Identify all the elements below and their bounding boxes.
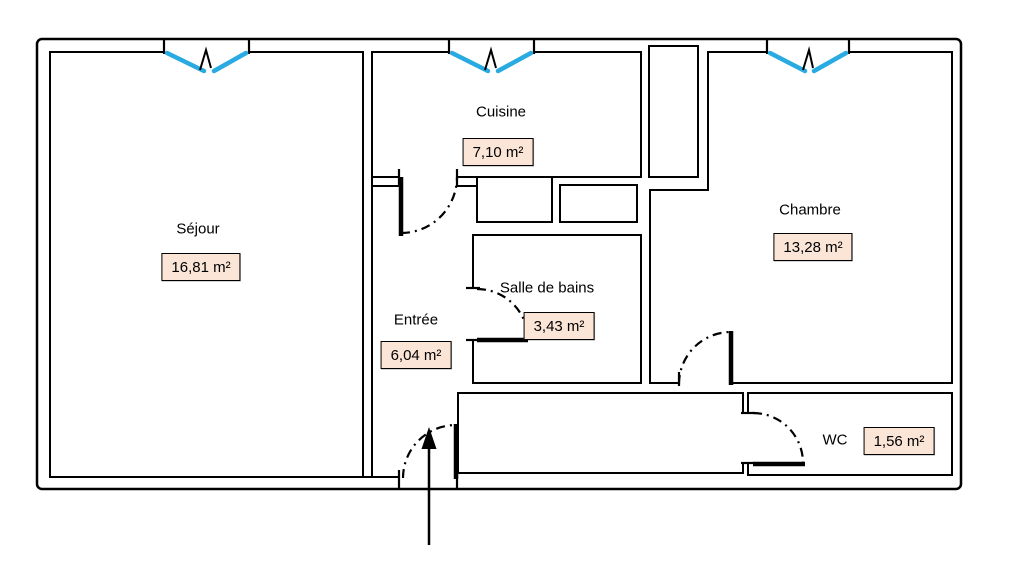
floor-plan-canvas: Séjour Cuisine Chambre Salle de bains En… — [0, 0, 1028, 580]
opening-door-cuisine — [400, 172, 456, 182]
opening-door-bains — [467, 289, 478, 339]
area-badge-entree: 6,04 m² — [381, 341, 452, 369]
opening-door-chambre — [680, 377, 730, 388]
duct-box-b — [560, 185, 637, 222]
room-label-cuisine: Cuisine — [476, 103, 526, 120]
room-label-salle-de-bains: Salle de bains — [500, 279, 594, 296]
area-badge-cuisine: 7,10 m² — [463, 138, 534, 166]
duct-box-c — [649, 46, 698, 177]
area-badge-wc: 1,56 m² — [864, 427, 935, 455]
duct-box-a — [477, 177, 552, 222]
room-label-wc: WC — [823, 431, 848, 448]
area-badge-sejour: 16,81 m² — [161, 253, 240, 281]
area-badge-salle-de-bains: 3,43 m² — [524, 312, 595, 340]
area-badge-chambre: 13,28 m² — [773, 233, 852, 261]
closet-box — [458, 393, 743, 473]
room-label-entree: Entrée — [394, 311, 438, 328]
room-label-sejour: Séjour — [176, 220, 219, 237]
wall-salle-de-bains — [473, 235, 641, 383]
room-label-chambre: Chambre — [779, 201, 841, 218]
opening-door-wc — [742, 414, 753, 462]
